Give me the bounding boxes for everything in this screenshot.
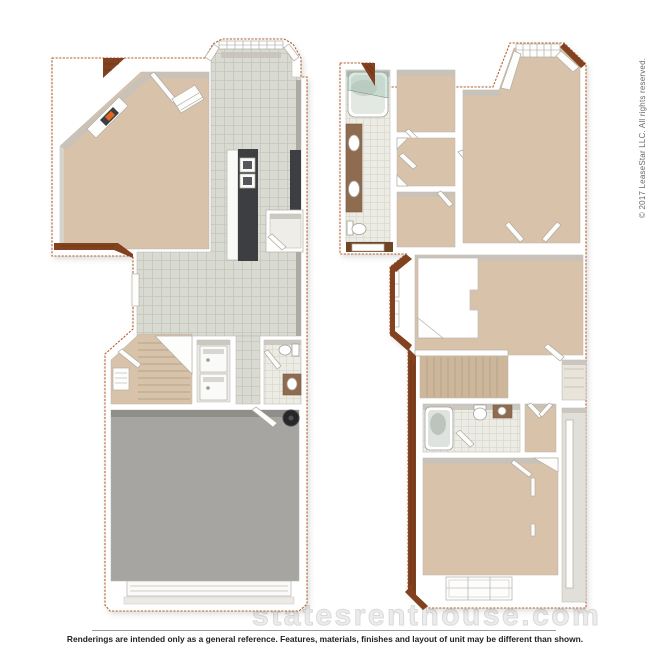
- window: [352, 244, 384, 251]
- pantry: [266, 210, 303, 252]
- window: [446, 577, 512, 600]
- sink-vanity: [283, 374, 301, 395]
- floorplan-rendering: [0, 0, 650, 650]
- closet: [397, 191, 455, 247]
- toilet: [474, 405, 487, 420]
- washer: [200, 346, 227, 372]
- vent-grille: [113, 368, 129, 390]
- divider-line: [92, 630, 556, 631]
- hall-bathroom: [423, 404, 520, 452]
- bedroom-closet: [525, 403, 556, 452]
- garage: [111, 407, 299, 604]
- laundry-closet: [197, 340, 230, 402]
- water-heater: [283, 410, 299, 426]
- double-sink-vanity: [346, 124, 362, 212]
- stair-railing: [415, 350, 508, 356]
- garage-door: [124, 581, 294, 604]
- first-floor-plan: [52, 39, 307, 611]
- stairs-down: [420, 356, 508, 398]
- window: [132, 274, 139, 306]
- master-bathroom: [346, 70, 393, 252]
- second-floor-plan: [340, 43, 586, 610]
- linen-closet: [562, 360, 586, 400]
- toilet: [279, 344, 299, 356]
- dryer: [200, 374, 227, 400]
- kitchen-island: [227, 149, 258, 261]
- disclaimer-text: Renderings are intended only as a genera…: [0, 634, 650, 644]
- powder-room: [264, 340, 301, 404]
- refrigerator-counter: [290, 150, 301, 210]
- hall-corridor: [236, 336, 260, 404]
- sink-vanity: [493, 405, 512, 418]
- floorplan-page: statesrenthouse.com: [0, 0, 650, 650]
- closet-door: [566, 420, 573, 588]
- bathtub: [425, 407, 453, 450]
- master-bedroom: [463, 44, 580, 243]
- utility-closet: [562, 408, 586, 602]
- copyright-text: © 2017 LeaseStar LLC. All rights reserve…: [638, 8, 649, 218]
